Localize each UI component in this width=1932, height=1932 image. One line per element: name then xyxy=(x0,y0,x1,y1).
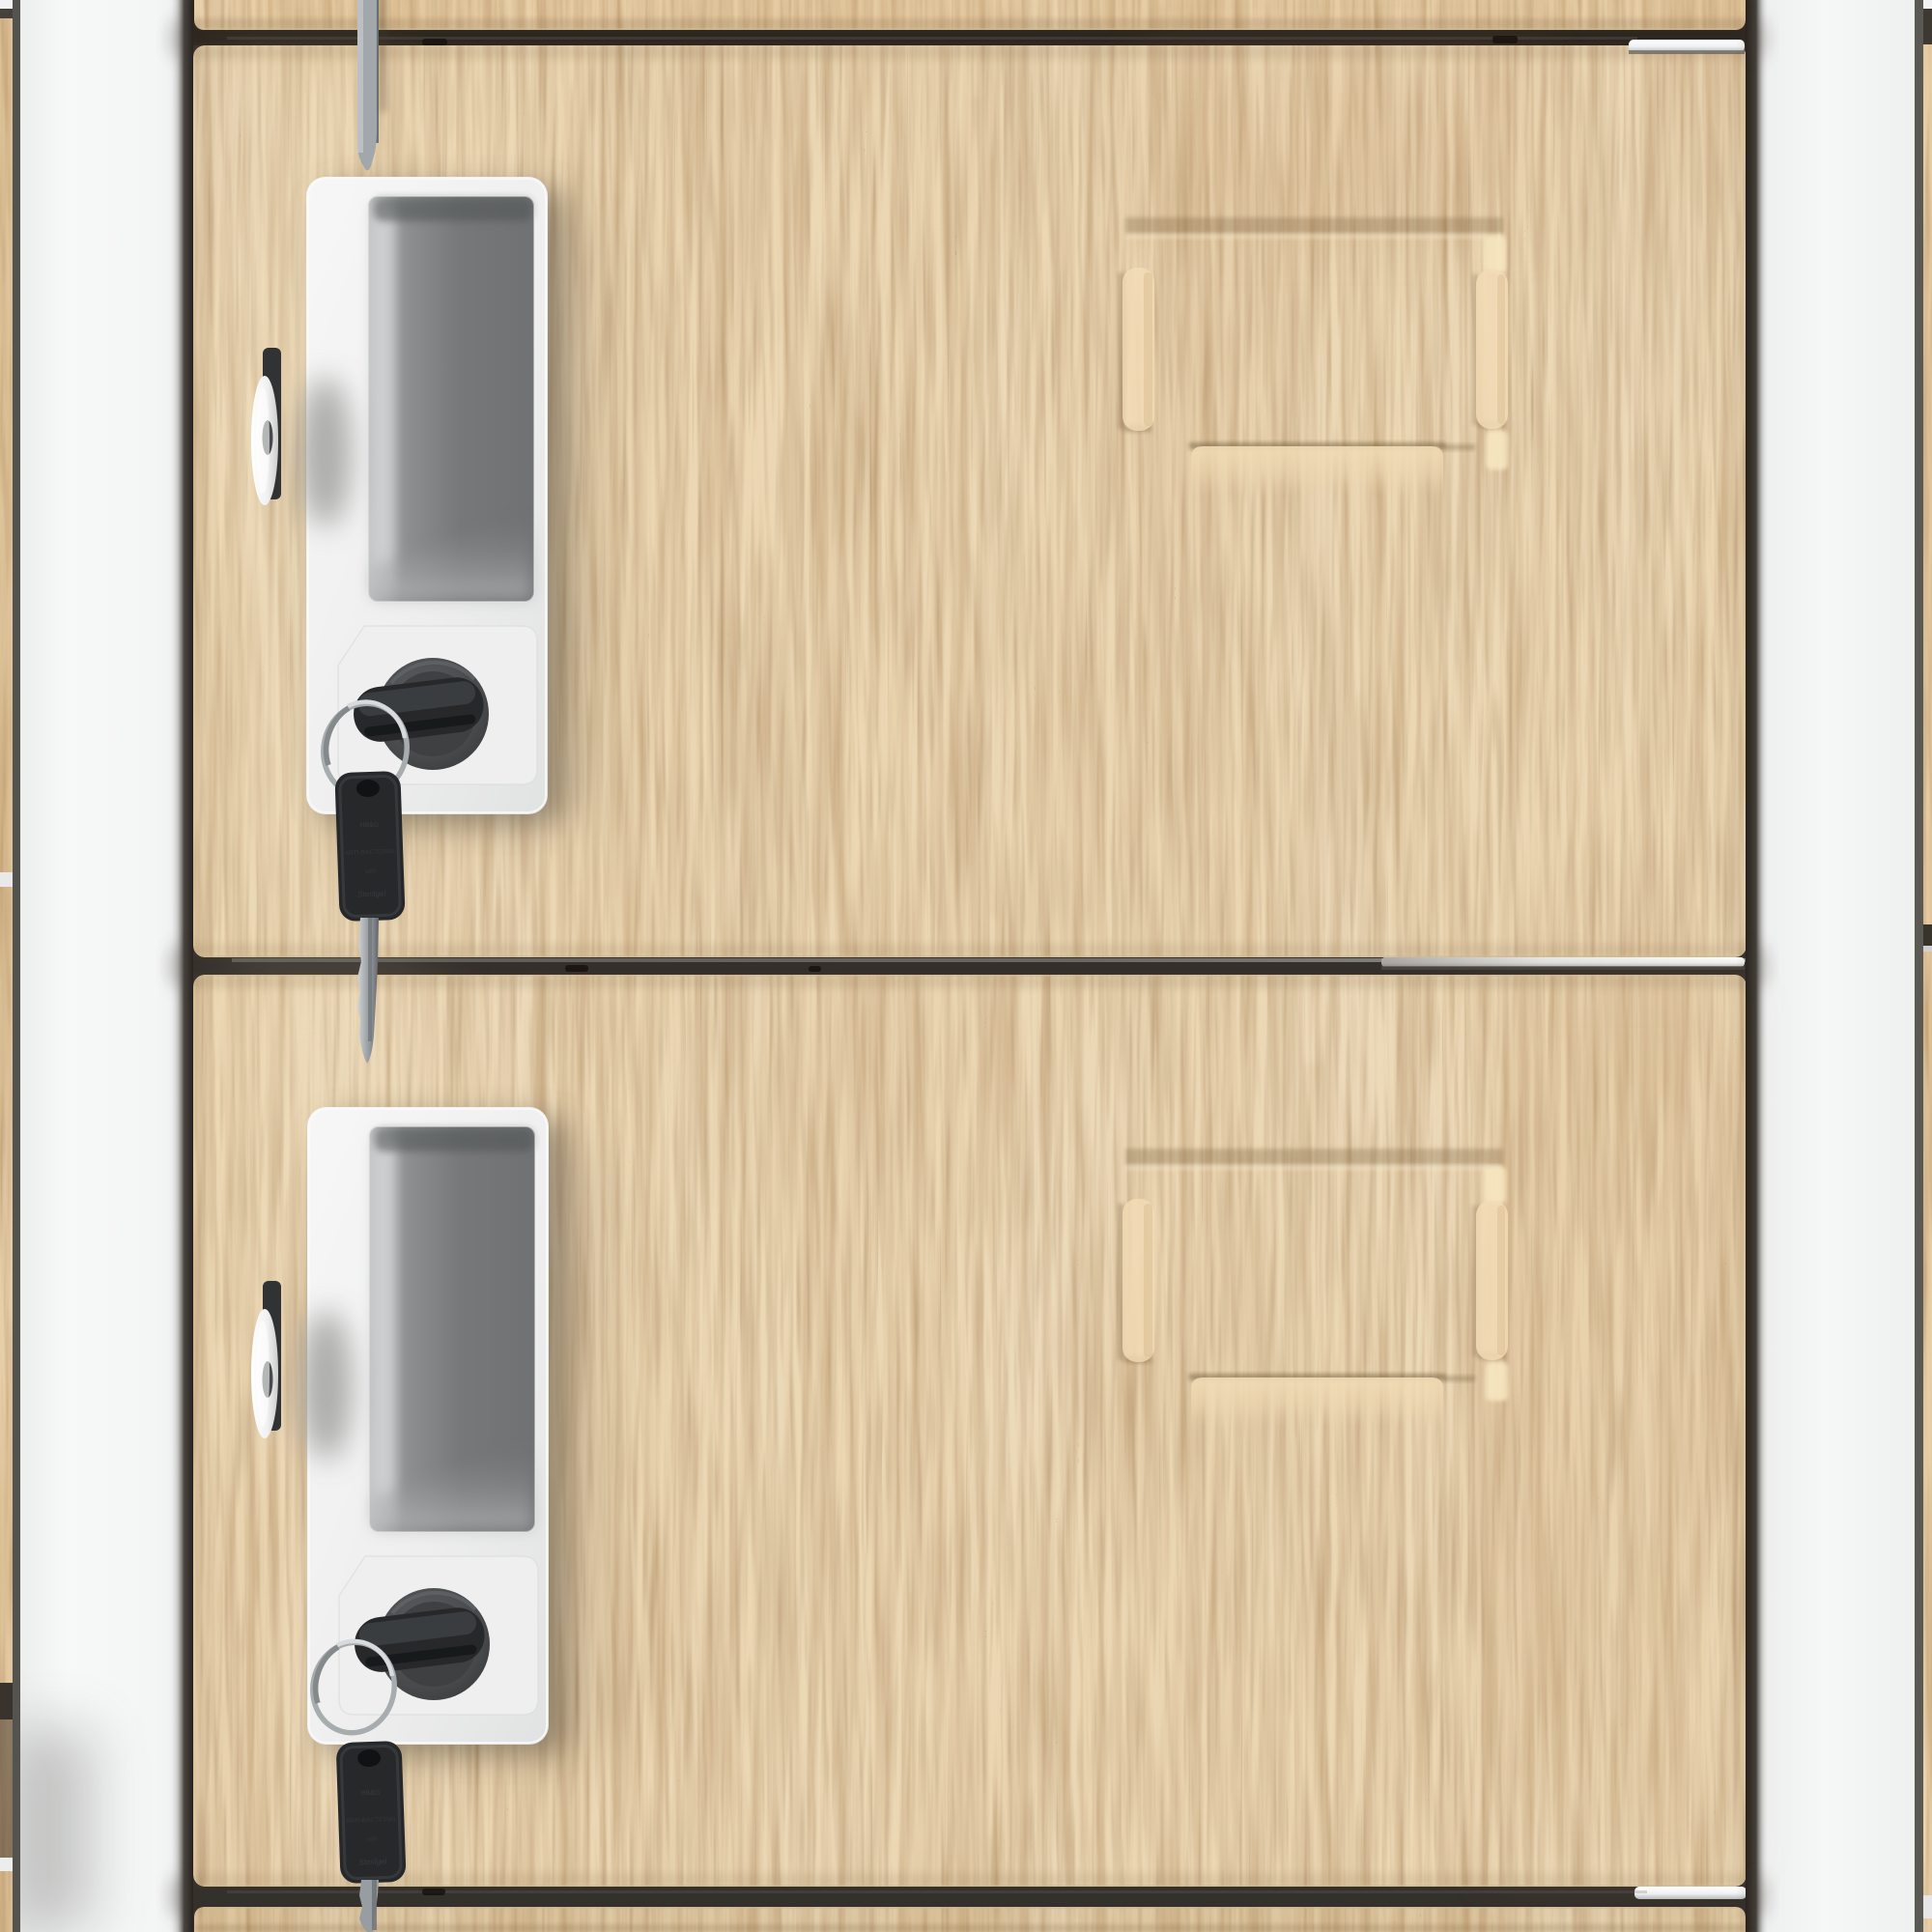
svg-text:Sterilgel: Sterilgel xyxy=(357,889,385,898)
svg-text:Sterilgel: Sterilgel xyxy=(358,1857,386,1866)
svg-text:HB&G: HB&G xyxy=(359,822,379,830)
svg-text:with: with xyxy=(364,868,377,875)
svg-text:with: with xyxy=(365,1836,378,1843)
svg-text:HB&G: HB&G xyxy=(360,1790,380,1798)
